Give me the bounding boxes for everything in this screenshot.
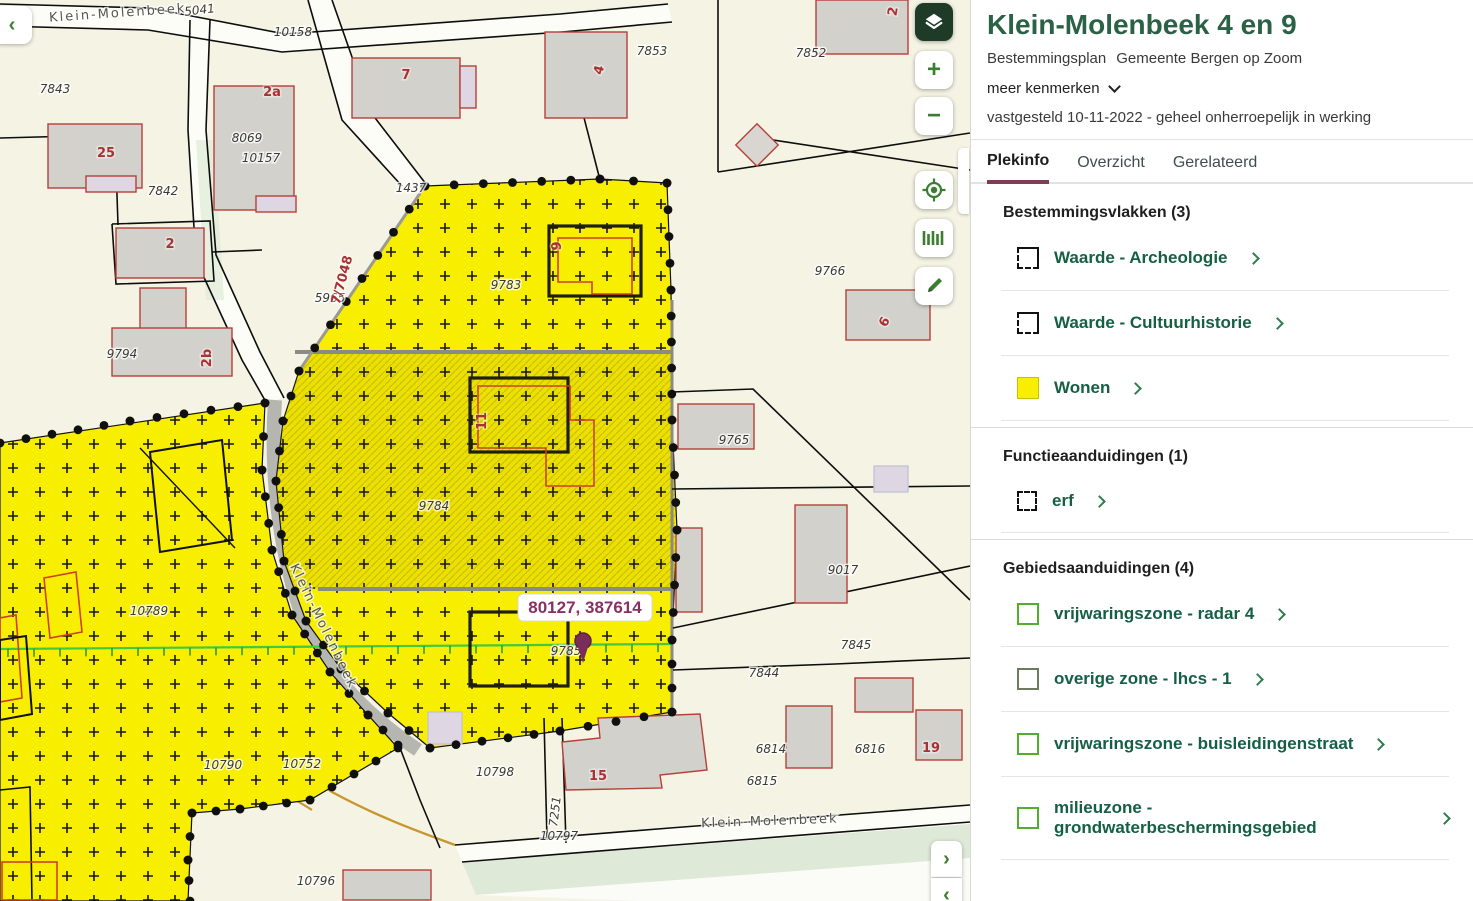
chevron-left-icon: ‹: [9, 14, 16, 37]
waarde-square-icon: [1017, 247, 1039, 269]
green-square-icon: [1017, 807, 1039, 829]
panel-resize-handle[interactable]: [958, 148, 969, 214]
parcel-number-label: 7845: [841, 638, 872, 652]
item-label: Waarde - Archeologie: [1054, 248, 1228, 268]
chevron-right-icon: [1438, 812, 1451, 825]
list-item-waarde-archeologie[interactable]: Waarde - Archeologie: [1001, 226, 1449, 291]
waarde-square-icon: [1017, 312, 1039, 334]
section-heading: Gebiedsaanduidingen (4): [987, 560, 1449, 578]
locate-button[interactable]: [915, 171, 953, 209]
minus-icon: −: [927, 102, 941, 130]
list-item-wonen[interactable]: Wonen: [1001, 356, 1449, 421]
chevron-right-icon: [1251, 673, 1264, 686]
dashed-square-icon: [1017, 491, 1037, 511]
house-number-label: 25: [97, 146, 115, 161]
page-title: Klein-Molenbeek 4 en 9: [987, 9, 1457, 41]
measure-ruler-icon: [921, 227, 947, 249]
house-number-label: 15: [589, 769, 607, 784]
pencil-icon: [922, 274, 946, 298]
layers-button[interactable]: [915, 3, 953, 41]
parcel-number-label: 7843: [40, 82, 71, 96]
item-label: vrijwaringszone - buisleidingenstraat: [1054, 734, 1353, 754]
map-drawing: 5041101587843784280691015714377853785297…: [0, 0, 970, 901]
panel-expand-button[interactable]: ›: [931, 841, 962, 877]
zoom-out-button[interactable]: −: [915, 97, 953, 135]
parcel-number-label: 9765: [719, 433, 750, 447]
panel-header: Klein-Molenbeek 4 en 9 BestemmingsplanGe…: [971, 0, 1473, 140]
chevron-right-icon: [1373, 738, 1386, 751]
wonen-yellow-square-icon: [1017, 377, 1039, 399]
locate-icon: [921, 177, 947, 203]
section-gebiedsaanduidingen: Gebiedsaanduidingen (4) vrijwaringszone …: [971, 540, 1473, 866]
parcel-number-label: 1437: [396, 181, 427, 195]
parcel-number-label: 7853: [637, 44, 668, 58]
green-square-icon: [1017, 603, 1039, 625]
house-number-label: 2a: [263, 85, 281, 100]
section-bestemmingsvlakken: Bestemmingsvlakken (3) Waarde - Archeolo…: [971, 184, 1473, 428]
draw-button[interactable]: [915, 267, 953, 305]
chevron-left-icon: ‹: [943, 884, 950, 901]
item-label: milieuzone - grondwaterbeschermingsgebie…: [1054, 798, 1419, 838]
item-label: vrijwaringszone - radar 4: [1054, 604, 1254, 624]
status-line: vastgesteld 10-11-2022 - geheel onherroe…: [987, 109, 1457, 126]
parcel-number-label: 9766: [815, 264, 846, 278]
house-number-label: 2b: [200, 349, 215, 367]
list-item-erf[interactable]: erf: [1001, 470, 1449, 533]
chevron-right-icon: ›: [943, 848, 950, 871]
tab-plekinfo[interactable]: Plekinfo: [987, 152, 1049, 184]
tab-bar: Plekinfo Overzicht Gerelateerd: [971, 140, 1473, 184]
municipality: Gemeente Bergen op Zoom: [1116, 50, 1302, 67]
section-functieaanduidingen: Functieaanduidingen (1) erf: [971, 428, 1473, 540]
map-canvas[interactable]: 5041101587843784280691015714377853785297…: [0, 0, 970, 901]
house-number-label: 2: [165, 237, 174, 252]
plan-type: Bestemmingsplan: [987, 50, 1106, 67]
parcel-number-label: 7844: [749, 666, 780, 680]
green-square-icon: [1017, 733, 1039, 755]
parcel-number-label: 10158: [274, 25, 313, 39]
zoom-in-button[interactable]: +: [915, 51, 953, 89]
chevron-right-icon: [1271, 317, 1284, 330]
parcel-number-label: 10790: [204, 758, 243, 772]
parcel-number-label: 6814: [756, 742, 787, 756]
parcel-number-label: 7842: [148, 184, 179, 198]
olive-square-icon: [1017, 668, 1039, 690]
plan-type-line: BestemmingsplanGemeente Bergen op Zoom: [987, 50, 1457, 67]
list-item-milieuzone-grondwaterbeschermingsgebied[interactable]: milieuzone - grondwaterbeschermingsgebie…: [1001, 777, 1449, 860]
list-item-waarde-cultuurhistorie[interactable]: Waarde - Cultuurhistorie: [1001, 291, 1449, 356]
house-number-label: 19: [922, 741, 940, 756]
chevron-right-icon: [1273, 608, 1286, 621]
section-heading: Bestemmingsvlakken (3): [987, 204, 1449, 222]
parcel-number-label: 6815: [747, 774, 778, 788]
coordinate-label: 80127, 387614: [528, 598, 642, 617]
parcel-number-label: 6816: [855, 742, 886, 756]
house-number-label: 7: [401, 68, 410, 83]
parcel-number-label: 7852: [796, 46, 827, 60]
item-label: Waarde - Cultuurhistorie: [1054, 313, 1252, 333]
plus-icon: +: [927, 56, 941, 84]
tab-gerelateerd[interactable]: Gerelateerd: [1173, 154, 1258, 182]
parcel-number-label: 10798: [476, 765, 515, 779]
parcel-number-label: 9783: [491, 278, 522, 292]
map-pin-icon: [575, 633, 591, 649]
list-item-overige-zone-lhcs[interactable]: overige zone - lhcs - 1: [1001, 647, 1449, 712]
parcel-number-label: 10797: [540, 829, 579, 843]
list-item-vrijwaringszone-buisleidingenstraat[interactable]: vrijwaringszone - buisleidingenstraat: [1001, 712, 1449, 777]
chevron-down-icon: [1108, 80, 1121, 93]
section-heading: Functieaanduidingen (1): [987, 448, 1449, 466]
layers-icon: [923, 11, 945, 33]
info-panel: Klein-Molenbeek 4 en 9 BestemmingsplanGe…: [970, 0, 1473, 901]
parcel-number-label: 9017: [828, 563, 859, 577]
house-number-label: 9: [550, 241, 565, 250]
parcel-number-label: 10752: [283, 757, 321, 771]
parcel-number-label: 9784: [419, 499, 450, 513]
back-button[interactable]: ‹: [0, 6, 32, 44]
parcel-number-label: 9794: [107, 347, 138, 361]
chevron-right-icon: [1093, 495, 1106, 508]
app: 5041101587843784280691015714377853785297…: [0, 0, 1473, 901]
chevron-right-icon: [1247, 252, 1260, 265]
parcel-number-label: 8069: [232, 131, 263, 145]
parcel-number-label: 10789: [130, 604, 168, 618]
item-label: erf: [1052, 491, 1074, 511]
panel-collapse-button[interactable]: ‹: [931, 878, 962, 901]
item-label: overige zone - lhcs - 1: [1054, 669, 1232, 689]
more-details-label: meer kenmerken: [987, 80, 1100, 97]
item-label: Wonen: [1054, 378, 1110, 398]
measure-button[interactable]: [915, 219, 953, 257]
chevron-right-icon: [1129, 382, 1142, 395]
more-details-toggle[interactable]: meer kenmerken: [987, 80, 1119, 97]
parcel-number-label: 10796: [297, 874, 336, 888]
parcel-number-label: 10157: [242, 151, 281, 165]
tab-overzicht[interactable]: Overzicht: [1077, 154, 1145, 182]
house-number-label: 11: [475, 412, 490, 430]
list-item-vrijwaringszone-radar[interactable]: vrijwaringszone - radar 4: [1001, 582, 1449, 647]
